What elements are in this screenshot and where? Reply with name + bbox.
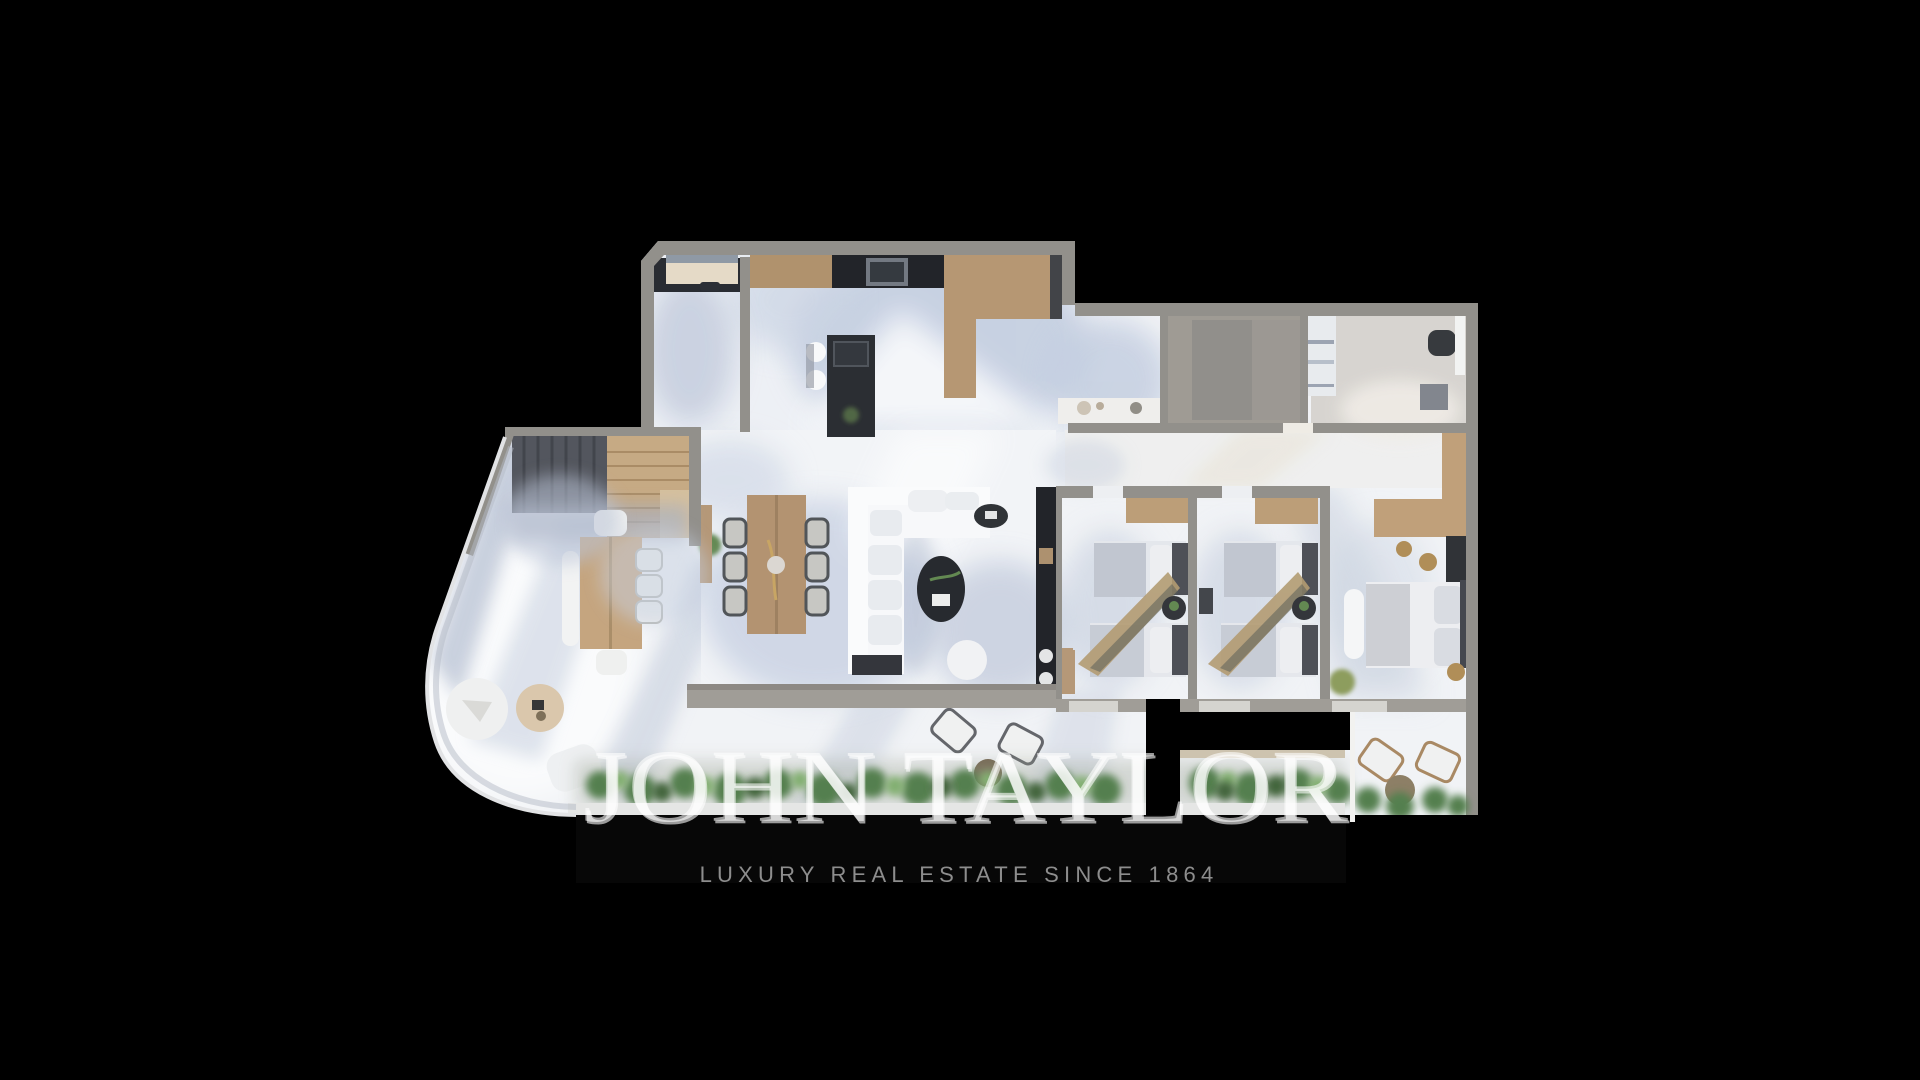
svg-text:LUXURY REAL ESTATE SINCE 1864: LUXURY REAL ESTATE SINCE 1864 (700, 862, 1219, 887)
svg-text:JOHN TAYLOR: JOHN TAYLOR (583, 729, 1349, 844)
